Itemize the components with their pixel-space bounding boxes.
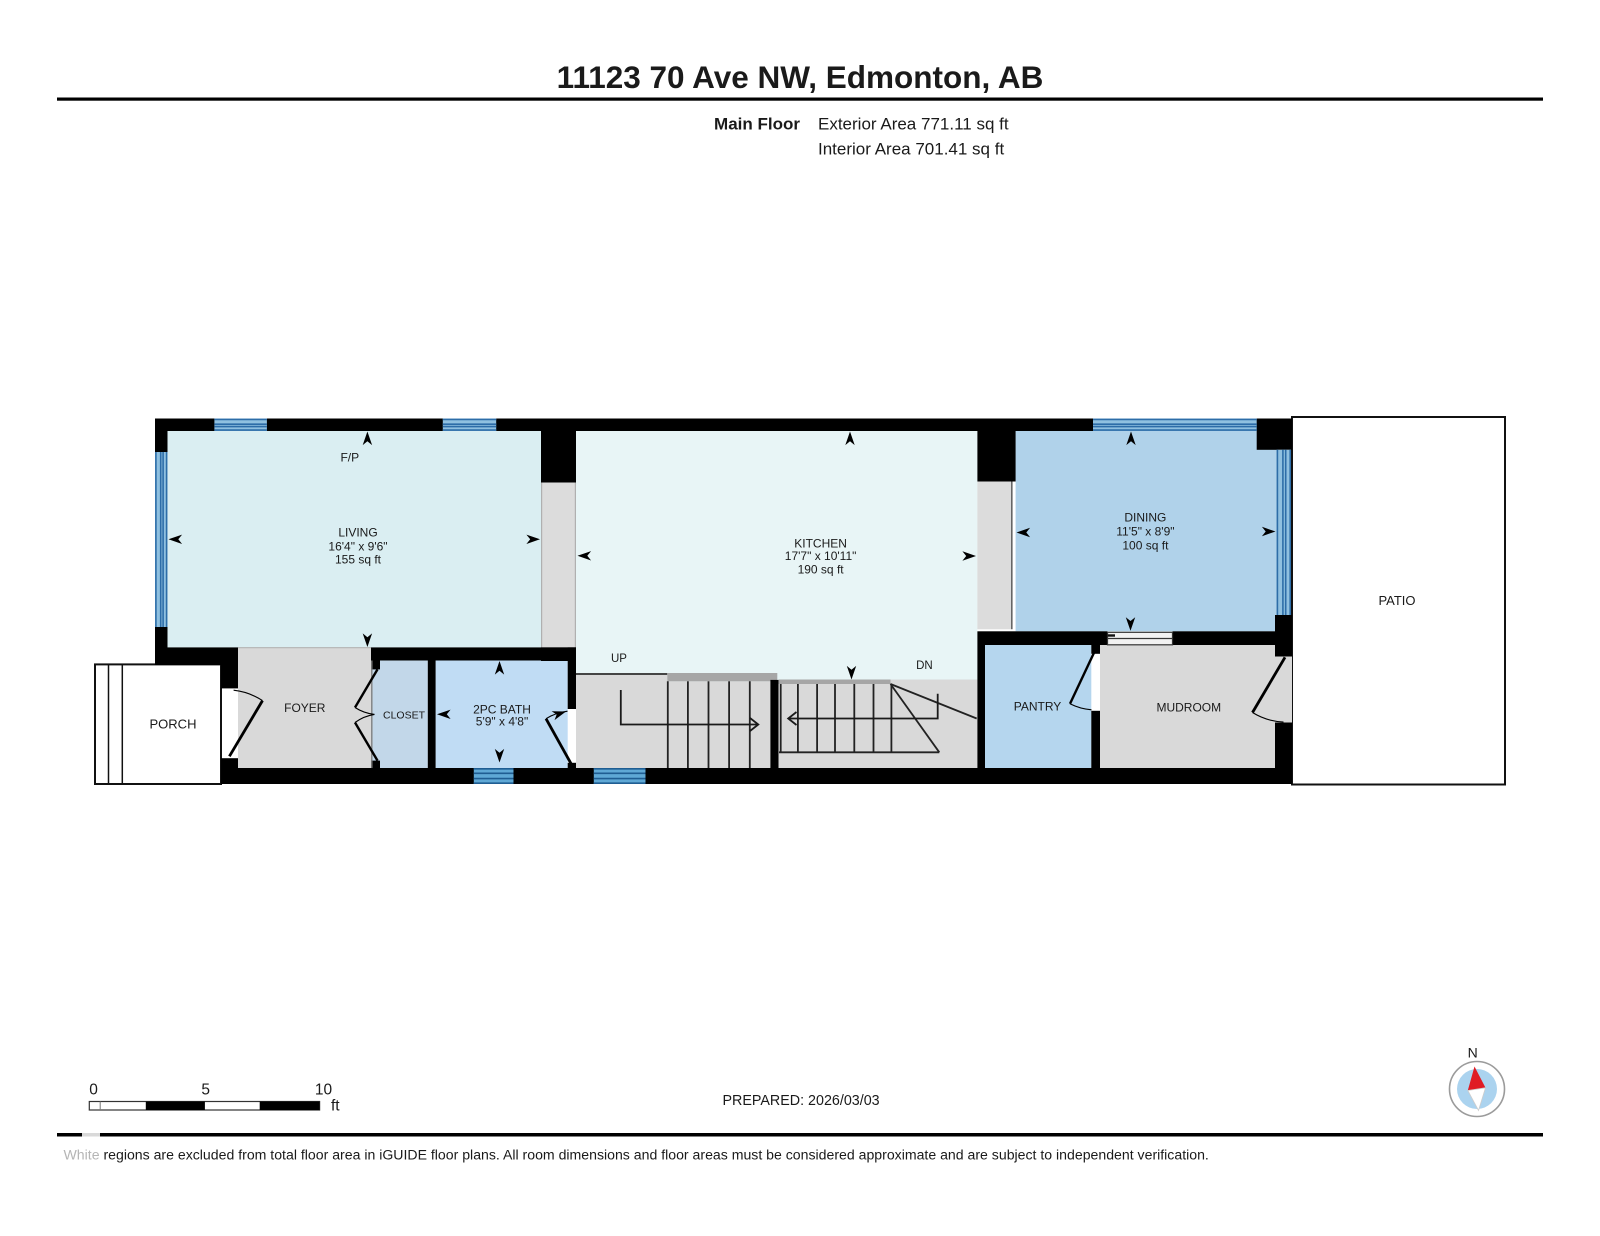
svg-text:PORCH: PORCH xyxy=(150,716,197,731)
svg-text:ft: ft xyxy=(331,1098,340,1115)
svg-text:5: 5 xyxy=(201,1082,210,1099)
svg-text:F/P: F/P xyxy=(340,450,359,464)
svg-text:PREPARED: 2026/03/03: PREPARED: 2026/03/03 xyxy=(723,1093,880,1109)
svg-text:190 sq ft: 190 sq ft xyxy=(798,562,845,576)
svg-text:17'7" x 10'11": 17'7" x 10'11" xyxy=(785,549,857,563)
svg-text:11123 70 Ave NW, Edmonton, AB: 11123 70 Ave NW, Edmonton, AB xyxy=(557,59,1044,95)
svg-text:16'4" x 9'6": 16'4" x 9'6" xyxy=(328,539,387,553)
svg-text:UP: UP xyxy=(611,653,627,665)
svg-text:11'5" x 8'9": 11'5" x 8'9" xyxy=(1116,525,1174,539)
svg-text:100 sq ft: 100 sq ft xyxy=(1122,539,1169,553)
svg-text:Interior Area 701.41 sq ft: Interior Area 701.41 sq ft xyxy=(818,140,1004,159)
svg-text:FOYER: FOYER xyxy=(284,701,326,715)
svg-text:LIVING: LIVING xyxy=(338,526,377,540)
svg-text:Main Floor: Main Floor xyxy=(714,115,800,134)
svg-text:MUDROOM: MUDROOM xyxy=(1156,701,1221,715)
svg-text:10: 10 xyxy=(315,1082,333,1099)
svg-text:DN: DN xyxy=(916,660,933,672)
svg-text:PATIO: PATIO xyxy=(1378,593,1415,608)
svg-text:DINING: DINING xyxy=(1124,510,1166,524)
svg-text:155 sq ft: 155 sq ft xyxy=(335,553,382,567)
svg-text:N: N xyxy=(1468,1045,1478,1061)
svg-text:5'9" x 4'8": 5'9" x 4'8" xyxy=(476,715,528,729)
svg-text:Exterior Area 771.11 sq ft: Exterior Area 771.11 sq ft xyxy=(818,115,1009,134)
svg-text:0: 0 xyxy=(89,1082,98,1099)
svg-text:CLOSET: CLOSET xyxy=(383,710,426,722)
svg-text:White regions are excluded fro: White regions are excluded from total fl… xyxy=(64,1147,1209,1163)
svg-text:PANTRY: PANTRY xyxy=(1014,700,1062,714)
